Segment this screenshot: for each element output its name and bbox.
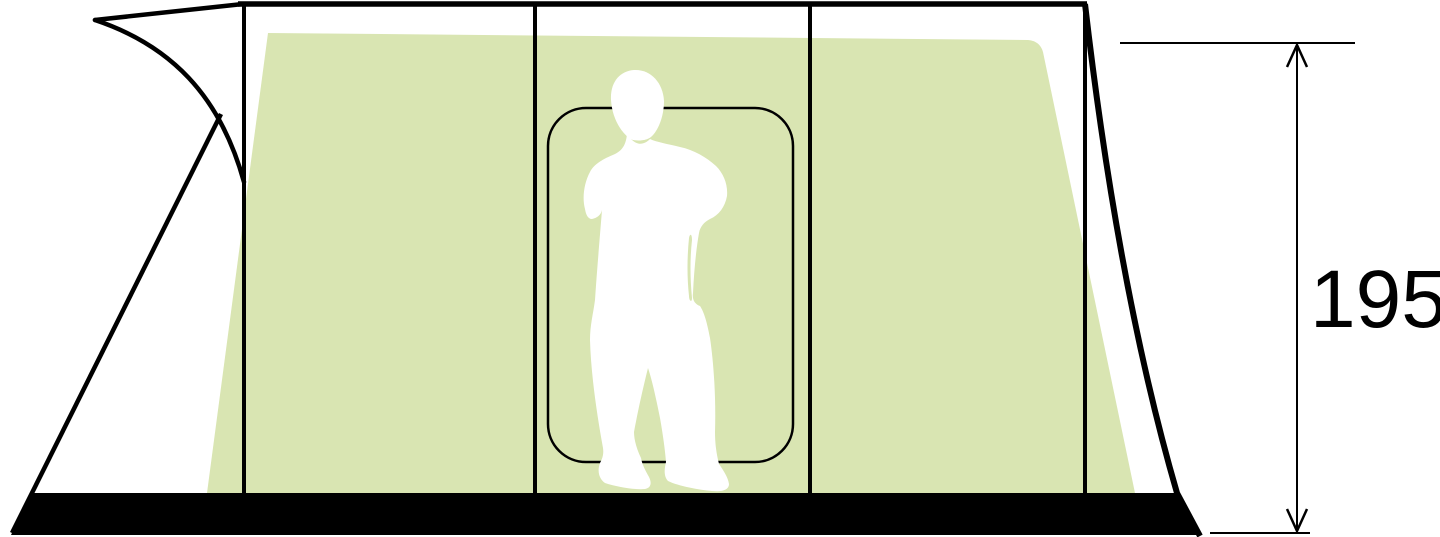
tent-side-view-diagram: 195 [0,0,1440,537]
tent-front-ridge [95,4,243,20]
tent-front-awning-curve [95,20,244,182]
groundsheet-base [11,493,1199,535]
tent-diagram-canvas: 195 [0,0,1440,537]
tent-front-guy-line [12,114,221,533]
dimension-value: 195 [1310,254,1440,345]
